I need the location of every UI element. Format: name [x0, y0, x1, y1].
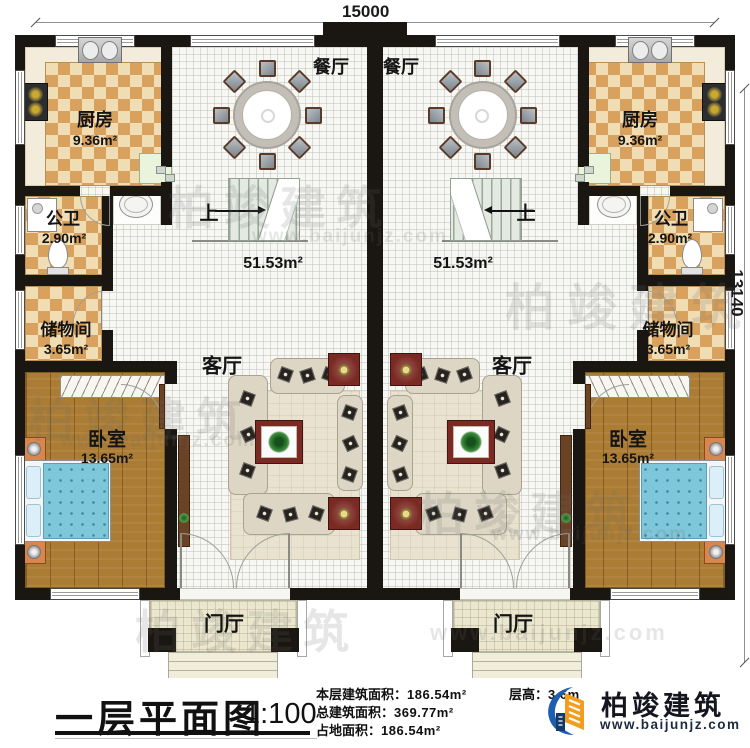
label-living-right: 客厅 [492, 350, 532, 379]
brand-logo-icon [543, 680, 599, 740]
side-table [328, 353, 360, 386]
label-bath-right: 公卫 [654, 205, 688, 230]
window [190, 35, 315, 47]
stove-icon [22, 83, 48, 121]
stat-label: 本层建筑面积： [316, 687, 407, 702]
floor-plan-page: 15000 13140 [0, 0, 750, 748]
label-bedroom-area-right: 13.65m² [602, 450, 654, 466]
dining-chair [305, 107, 322, 124]
wall [165, 429, 177, 588]
label-living-left: 客厅 [202, 350, 242, 379]
party-wall [375, 35, 383, 600]
stat-footprint-area: 占地面积：186.54m² [316, 720, 441, 739]
side-table [390, 497, 422, 530]
label-bath-area-right: 2.90m² [648, 230, 692, 246]
sofa [337, 395, 363, 491]
stat-value: 369.77m² [394, 705, 454, 720]
label-storage-right: 储物间 [643, 316, 694, 341]
stat-label: 占地面积： [316, 723, 381, 738]
pillow-icon [709, 466, 724, 499]
wall [165, 372, 177, 384]
label-kitchen-area-left: 9.36m² [73, 132, 117, 148]
label-dining-right: 餐厅 [383, 53, 419, 79]
brand-site: www.baijunjz.com [600, 717, 741, 732]
dimension-height: 13140 [727, 269, 747, 316]
bed-mattress [43, 463, 109, 539]
sofa-chaise [243, 493, 335, 535]
window [725, 70, 735, 145]
window [435, 35, 560, 47]
coffee-table [447, 420, 495, 464]
porch-column [574, 628, 602, 652]
window [725, 455, 735, 545]
pillow-icon [26, 466, 41, 499]
plant-icon [179, 513, 189, 523]
bedroom-door-leaf [585, 384, 591, 429]
kitchen-slider-door [584, 166, 594, 174]
kitchen-sink-icon [628, 37, 672, 63]
stair-arrowhead [258, 206, 266, 214]
pillow-icon [709, 504, 724, 537]
dining-table [449, 81, 517, 149]
label-stairs-up-right: 上 [516, 199, 535, 226]
kitchen-slider-door [165, 174, 175, 182]
label-dining-left: 餐厅 [313, 53, 349, 79]
dwelling-unit [375, 35, 735, 680]
label-hall-area-left: 51.53m² [243, 255, 303, 273]
kitchen-slider-door [156, 166, 166, 174]
window [610, 588, 700, 600]
entrance-opening [180, 588, 290, 600]
label-bath-left: 公卫 [46, 205, 80, 230]
label-bedroom-right: 卧室 [609, 425, 647, 452]
label-foyer-right: 门厅 [493, 608, 533, 637]
center-wall-block [323, 22, 407, 47]
wall [578, 45, 589, 167]
dining-chair [259, 153, 276, 170]
nightstand-icon [22, 437, 46, 461]
dimension-width: 15000 [342, 2, 389, 22]
label-foyer-left: 门厅 [204, 608, 244, 637]
wall [573, 429, 585, 588]
dining-chair [428, 107, 445, 124]
entrance-opening [460, 588, 570, 600]
wall [578, 186, 640, 196]
window [15, 290, 25, 350]
dining-chair [213, 107, 230, 124]
stat-floor-area: 本层建筑面积：186.54m² [316, 684, 467, 703]
coffee-table [255, 420, 303, 464]
plan-scale: 1:100 [244, 698, 317, 731]
tv-console [178, 435, 190, 547]
window [15, 455, 25, 545]
bedroom-door-leaf [159, 384, 165, 429]
label-stairs-up-left: 上 [199, 199, 218, 226]
porch-column [271, 628, 299, 652]
window [50, 588, 140, 600]
porch-column [148, 628, 176, 652]
pillow-icon [26, 504, 41, 537]
wall [573, 361, 725, 372]
wall [110, 186, 172, 196]
kitchen-sink-icon [78, 37, 122, 63]
porch-column [451, 628, 479, 652]
stat-total-area: 总建筑面积：369.77m² [316, 702, 454, 721]
wall [25, 186, 80, 196]
dwelling-unit [15, 35, 375, 680]
wall [573, 372, 585, 384]
window [725, 205, 735, 255]
stat-value: 186.54m² [381, 723, 441, 738]
wall [648, 275, 725, 286]
wall [25, 361, 177, 372]
wall [670, 186, 725, 196]
window [15, 70, 25, 145]
entry-steps [168, 652, 278, 678]
plant-icon [561, 513, 571, 523]
bed-mattress [641, 463, 707, 539]
label-kitchen-right: 厨房 [622, 106, 658, 132]
stat-label: 总建筑面积： [316, 705, 394, 720]
dimension-line-right [744, 88, 745, 663]
label-kitchen-area-right: 9.36m² [618, 132, 662, 148]
label-storage-area-right: 3.65m² [646, 341, 690, 357]
stair-direction-arrow [215, 210, 259, 212]
party-wall [367, 35, 375, 600]
window [15, 205, 25, 255]
wall [161, 45, 172, 167]
side-table [390, 353, 422, 386]
label-hall-area-right: 51.53m² [433, 255, 493, 273]
side-table [328, 497, 360, 530]
kitchen-slider-door [575, 174, 585, 182]
label-bath-area-left: 2.90m² [42, 230, 86, 246]
label-bedroom-left: 卧室 [88, 425, 126, 452]
dining-chair [474, 153, 491, 170]
sofa-chaise [415, 493, 507, 535]
dining-chair [520, 107, 537, 124]
title-underline-thin [55, 738, 317, 739]
label-storage-area-left: 3.65m² [44, 341, 88, 357]
sofa [387, 395, 413, 491]
dining-table [233, 81, 301, 149]
nightstand-icon [22, 540, 46, 564]
title-underline [55, 731, 310, 735]
label-storage-left: 储物间 [41, 316, 92, 341]
tv-console [560, 435, 572, 547]
stat-value: 186.54m² [407, 687, 467, 702]
label-kitchen-left: 厨房 [77, 106, 113, 132]
wall [25, 275, 102, 286]
dining-chair [474, 60, 491, 77]
stair-arrowhead [484, 206, 492, 214]
shower-icon [693, 198, 723, 232]
entry-steps [472, 652, 582, 678]
dining-chair [259, 60, 276, 77]
label-bedroom-area-left: 13.65m² [81, 450, 133, 466]
